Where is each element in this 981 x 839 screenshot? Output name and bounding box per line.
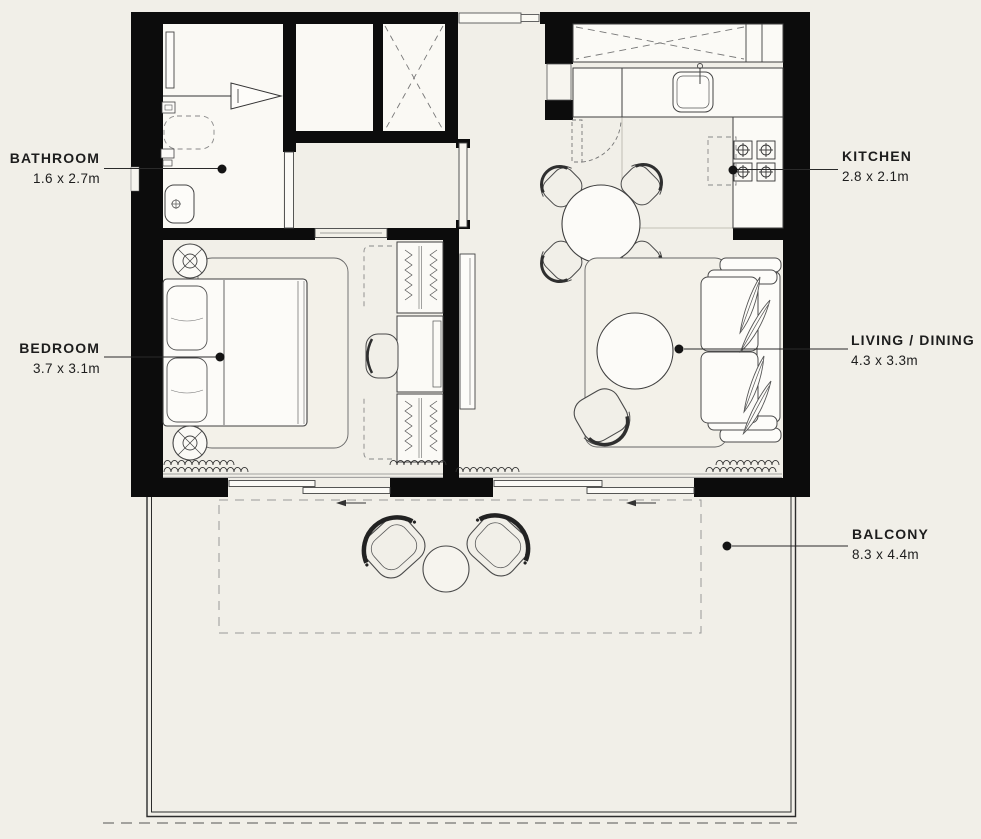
bathroom-mirror [166,32,174,88]
floor-plan-drawing [0,0,981,839]
dot-living [675,345,684,354]
bedroom-wardrobe-bottom [397,394,443,462]
balcony-label-dims: 8.3 x 4.4m [852,547,929,562]
balcony-label: BALCONY 8.3 x 4.4m [852,526,929,562]
bathroom-label: BATHROOM 1.6 x 2.7m [2,150,100,186]
wall-bottom-1 [131,478,228,497]
tv-unit [460,254,475,409]
balcony-chair-left [349,503,435,588]
living-dining-label: LIVING / DINING 4.3 x 3.3m [851,332,975,368]
toilet-cistern [161,149,174,158]
kitchen-label-name: KITCHEN [842,148,912,164]
wall-bedroom-living [443,228,459,478]
kitchen-door-swing [572,120,621,162]
bathroom-label-dims: 1.6 x 2.7m [2,171,100,186]
wall-top-right [540,12,810,24]
bedroom-label-name: BEDROOM [2,340,100,356]
dot-bathroom [218,165,227,174]
dining-table [562,185,640,263]
living-dining-label-name: LIVING / DINING [851,332,975,348]
bedroom-label: BEDROOM 3.7 x 3.1m [2,340,100,376]
room-floors [163,24,445,228]
bedside-stool-top [173,244,207,278]
wall-bottom-3 [694,478,810,497]
wall-under-closets [283,131,458,143]
bedside-stool-bottom [173,426,207,460]
balcony-chair-right [456,501,542,586]
pillow-bottom [167,358,207,422]
wall-closet-divider [373,12,383,143]
bedroom-furniture [163,242,443,462]
curtains [164,460,779,472]
wall-bedroom-top-left [163,228,315,240]
balcony-label-name: BALCONY [852,526,929,542]
entry-door-frame [521,15,539,22]
kitchen-counter-side [733,117,783,228]
wall-left [131,12,163,497]
dot-kitchen [729,166,738,175]
wall-bottom-2 [390,478,493,497]
kitchen-label: KITCHEN 2.8 x 2.1m [842,148,912,184]
kitchen-label-dims: 2.8 x 2.1m [842,169,912,184]
wall-bedroom-top-right [387,228,443,240]
floor-plan-page: BATHROOM 1.6 x 2.7m BEDROOM 3.7 x 3.1m K… [0,0,981,839]
coffee-table [597,313,673,389]
wall-entry-stub-upper [545,24,573,64]
glazing-lines [163,474,782,477]
wall-shaft-right [445,12,458,143]
closet-room-floor [296,24,373,131]
entry-wardrobe [573,24,783,62]
pillow-top [167,286,207,350]
dot-bedroom [216,353,225,362]
wall-kitchen-bottom [733,228,783,240]
bathroom-label-name: BATHROOM [2,150,100,166]
sliding-door-1 [229,481,390,507]
bedroom-label-dims: 3.7 x 3.1m [2,361,100,376]
bathroom-door [285,152,294,228]
living-room-furniture [460,254,781,455]
balcony-side-table [423,546,469,592]
entry-niche [547,64,571,100]
sliding-door-2 [494,481,694,507]
bedroom-wardrobe-top [397,242,443,313]
washbasin [165,185,194,223]
entry-door [459,13,521,23]
shower-control [162,102,175,113]
sofa [701,258,781,442]
hall-partition [459,143,467,227]
desk [397,316,443,392]
balcony [103,497,797,823]
hood-dashed-outline [708,137,736,185]
wall-right [783,12,810,497]
dot-balcony [723,542,732,551]
wall-niche [131,167,139,191]
wall-entry-stub-lower [545,100,573,120]
living-dining-label-dims: 4.3 x 3.3m [851,353,975,368]
desk-chair [366,334,398,378]
toilet-flush [163,160,172,166]
